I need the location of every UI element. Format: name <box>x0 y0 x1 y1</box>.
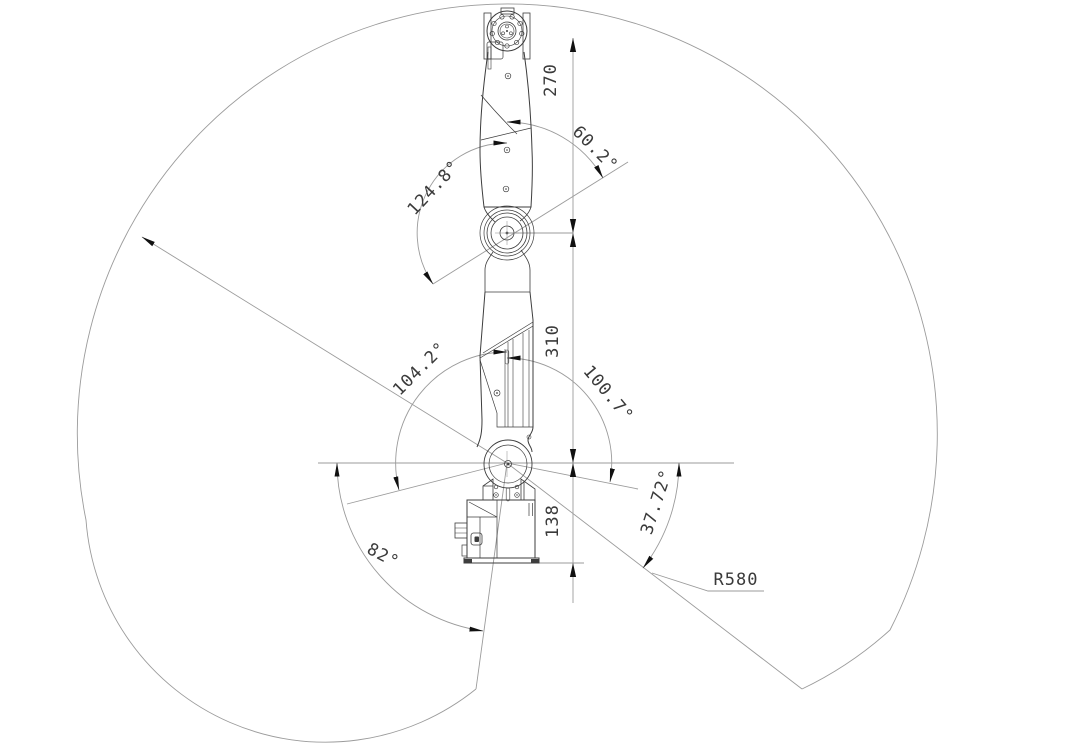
upper-arm-seam <box>481 128 531 140</box>
mounting-bracket <box>483 479 535 501</box>
dim-arrow-shoulder-bowtie-upper <box>570 449 576 463</box>
dim-arrow-elbow-bowtie-lower <box>570 233 576 247</box>
shoulder-joint <box>484 440 532 488</box>
robot-work-envelope-drawing <box>0 0 1074 743</box>
forearm-link <box>477 292 533 452</box>
dim-arrow-elbow-bowtie-upper <box>570 219 576 233</box>
base-connector-2 <box>462 545 467 556</box>
dim-arrow-shoulder-bowtie-lower <box>570 463 576 477</box>
bracket-slot <box>506 488 510 501</box>
forearm-left-edge <box>477 292 485 447</box>
envelope-radius-line-upper-left <box>142 237 507 463</box>
construction-lines <box>142 38 802 689</box>
forearm-panel-lines <box>505 330 529 427</box>
base-housing <box>455 500 539 563</box>
cad-drawing-canvas: 270 310 138 60.2° 124.8° 104.2° 100.7° 8… <box>0 0 1074 743</box>
base-connector <box>455 523 467 538</box>
flange-center-dot <box>506 30 508 32</box>
arc-124-8deg <box>417 143 507 284</box>
dim-label-138: 138 <box>543 504 563 538</box>
base-inner-lines <box>467 500 533 558</box>
dim-arrow-138-bottom <box>570 563 576 577</box>
dim-arrow-270-top <box>570 38 576 52</box>
shoulder-limit-line-down <box>476 463 507 689</box>
robot-arm-drawing <box>455 8 539 563</box>
dim-label-270: 270 <box>541 63 561 97</box>
elbow-reference-incline-line <box>433 162 628 284</box>
elbow-neck-upper <box>484 207 531 222</box>
upper-arm-panel-curve <box>481 95 517 134</box>
radius-label-r580: R580 <box>714 570 759 590</box>
upper-arm-link <box>480 52 532 207</box>
upper-arm-screws <box>503 73 511 192</box>
forearm-panel-seam <box>480 322 533 358</box>
dim-label-310: 310 <box>543 324 563 358</box>
wrist-side-pin <box>488 47 491 69</box>
tool-flange <box>484 8 530 69</box>
base-flange <box>464 558 539 563</box>
forearm-left-panel-edge <box>480 360 533 427</box>
work-envelope-outline <box>77 4 937 742</box>
flange-pin-holes <box>502 25 513 35</box>
elbow-centermark <box>495 221 519 245</box>
bracket-left <box>483 479 493 500</box>
envelope-boundary-arc <box>77 4 937 742</box>
